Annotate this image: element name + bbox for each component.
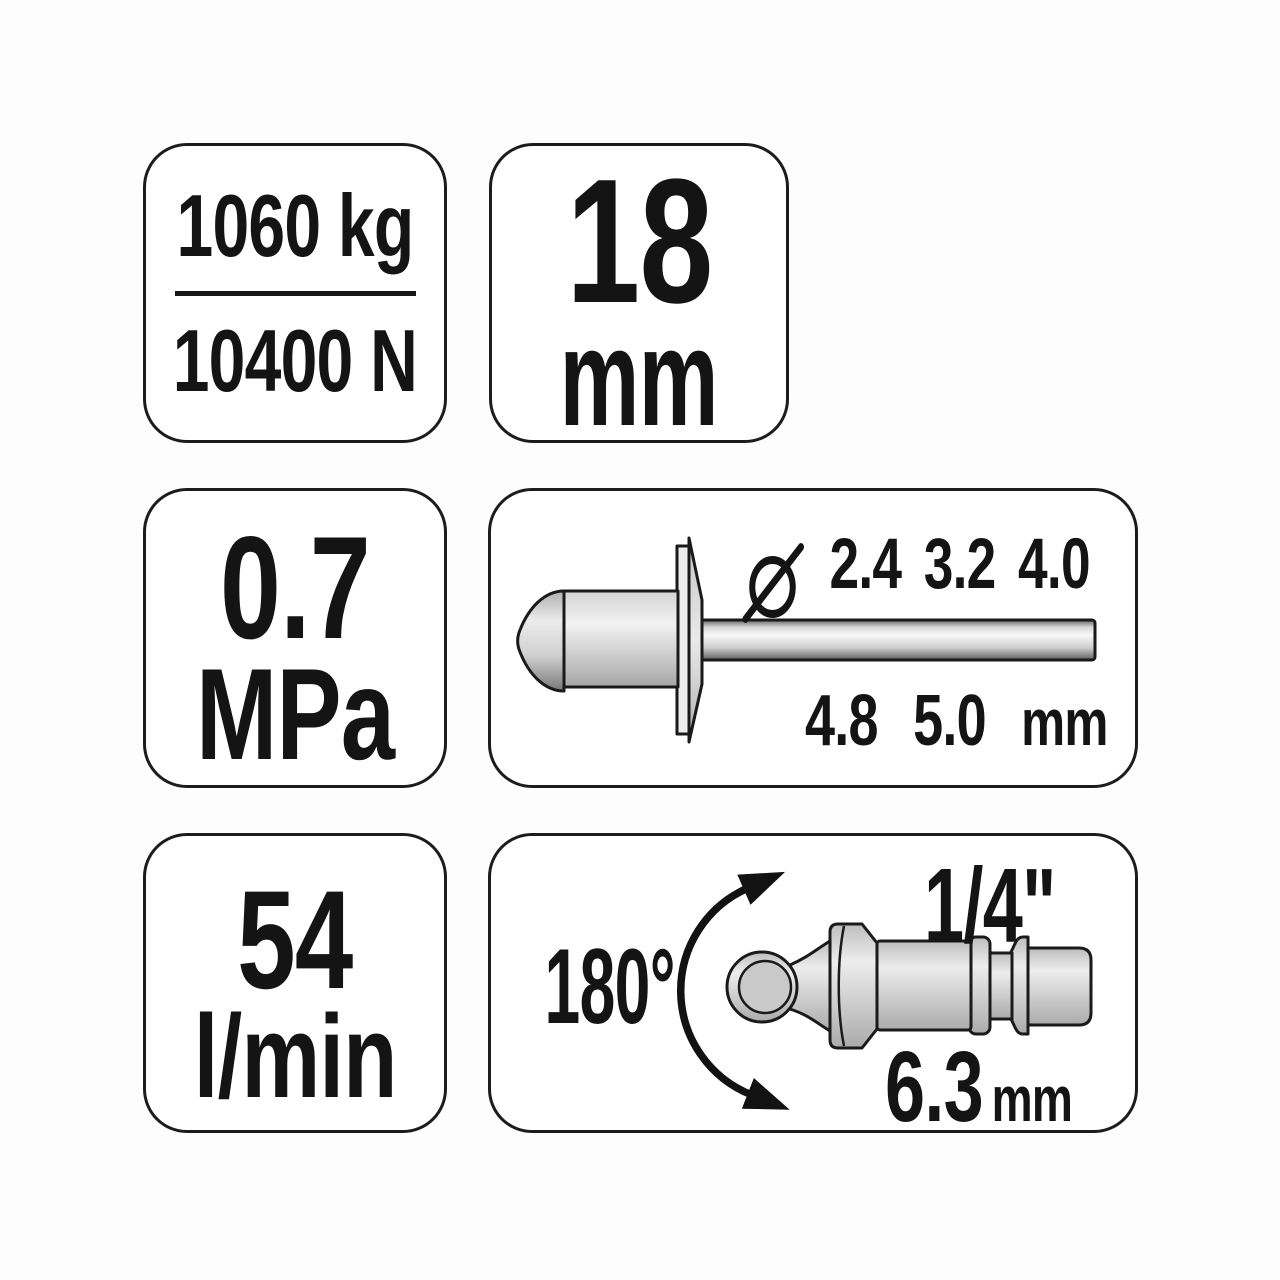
rivet-diameter-value: 4.8	[805, 685, 878, 757]
connector-thread-label: 1/4"	[893, 860, 1069, 952]
rivet-diameter-value: 2.4	[830, 529, 902, 601]
airflow-value: 54	[218, 881, 372, 999]
fraction-divider	[175, 291, 416, 296]
connector-diameter-unit: mm	[992, 1063, 1073, 1135]
rivet-diameter-row-1: 2.4 3.2 4.0	[741, 529, 1090, 613]
rivet-diameter-row-2: 4.8 5.0 mm	[805, 685, 1108, 758]
rivet-diameter-value: 4.0	[1018, 529, 1090, 601]
stroke-value: 18	[542, 169, 737, 314]
connector-diameter-label: 6.3mm	[885, 1048, 1072, 1138]
spec-sheet: 1060 kg 10400 N 18 mm 0.7 MPa	[0, 0, 1280, 1280]
rivet-diameter-unit: mm	[1021, 686, 1108, 758]
rivet-diameter-value: 3.2	[924, 529, 996, 601]
connector-diameter-value: 6.3	[885, 1031, 983, 1143]
pressure-unit: MPa	[163, 661, 427, 767]
stroke-badge: 18 mm	[489, 143, 789, 443]
diameter-icon	[741, 541, 807, 625]
force-n-value: 10400 N	[132, 322, 458, 400]
connector-badge: 180° 1/4" 6.3mm	[488, 833, 1138, 1133]
stroke-unit: mm	[517, 328, 760, 428]
force-badge: 1060 kg 10400 N	[143, 143, 447, 443]
pressure-value: 0.7	[195, 527, 395, 649]
force-kg-value: 1060 kg	[137, 187, 453, 265]
airflow-badge: 54 l/min	[143, 833, 447, 1133]
connector-rotation-label: 180°	[501, 942, 701, 1030]
airflow-unit: l/min	[160, 1009, 430, 1105]
rivet-diameter-badge: 2.4 3.2 4.0 4.8 5.0 mm	[488, 488, 1138, 788]
pressure-badge: 0.7 MPa	[143, 488, 447, 788]
rivet-diameter-value: 5.0	[913, 685, 986, 757]
